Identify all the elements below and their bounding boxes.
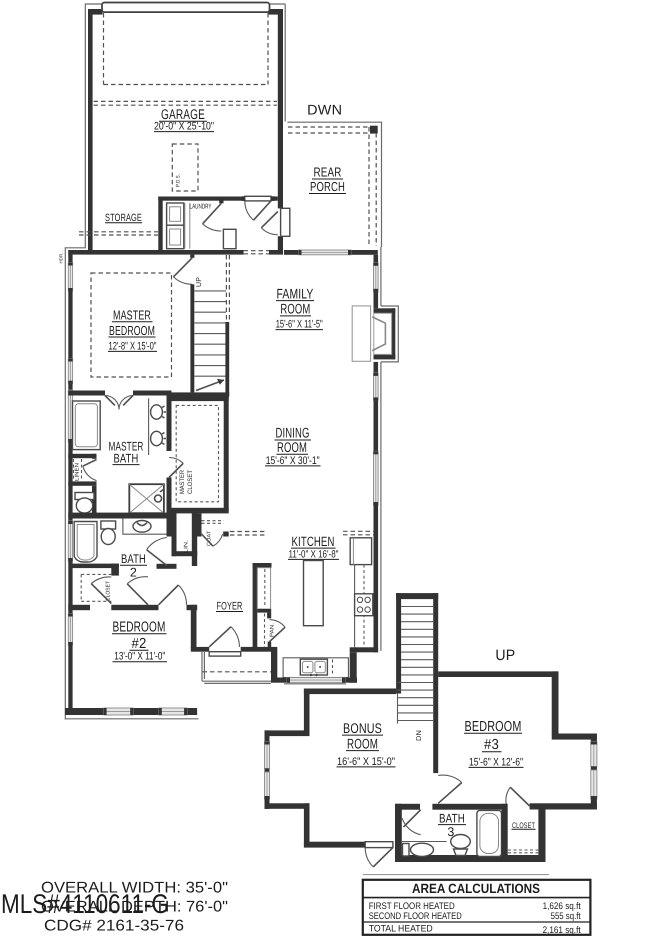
svg-text:MASTER: MASTER bbox=[179, 470, 186, 494]
svg-text:CLOSET: CLOSET bbox=[512, 821, 535, 830]
svg-text:PAN.: PAN. bbox=[270, 623, 276, 637]
svg-text:LAUNDRY: LAUNDRY bbox=[190, 203, 212, 210]
svg-text:LIN.: LIN. bbox=[184, 540, 190, 553]
svg-text:LINEN: LINEN bbox=[75, 463, 81, 481]
svg-text:TOTAL HEATED: TOTAL HEATED bbox=[369, 924, 433, 935]
svg-text:ROOM: ROOM bbox=[280, 301, 310, 317]
svg-text:CLOSET: CLOSET bbox=[187, 470, 194, 494]
svg-text:HDR.: HDR. bbox=[59, 253, 64, 264]
svg-text:PORCH: PORCH bbox=[310, 179, 345, 194]
svg-text:DN: DN bbox=[416, 730, 423, 741]
svg-text:REAR: REAR bbox=[314, 165, 342, 180]
svg-text:UP: UP bbox=[196, 277, 203, 287]
svg-text:15'-6" X 11'-5": 15'-6" X 11'-5" bbox=[276, 319, 323, 331]
svg-text:#2: #2 bbox=[132, 636, 147, 652]
svg-text:11'-0" X 16'-8": 11'-0" X 16'-8" bbox=[289, 548, 339, 560]
svg-text:BEDROOM: BEDROOM bbox=[465, 719, 522, 735]
svg-text:20'-0" X 25'-10": 20'-0" X 25'-10" bbox=[154, 121, 214, 133]
svg-text:STORAGE: STORAGE bbox=[105, 212, 142, 224]
svg-text:AREA CALCULATIONS: AREA CALCULATIONS bbox=[412, 881, 540, 896]
svg-text:OVERALL WIDTH: 35'-0": OVERALL WIDTH: 35'-0" bbox=[41, 879, 228, 896]
svg-text:OVERALL DEPTH: 76'-0": OVERALL DEPTH: 76'-0" bbox=[41, 898, 228, 915]
svg-text:P.D.S.: P.D.S. bbox=[176, 174, 182, 187]
svg-text:ROOM: ROOM bbox=[277, 439, 307, 455]
svg-text:ROOM: ROOM bbox=[347, 735, 378, 751]
svg-text:BATH: BATH bbox=[121, 552, 146, 566]
svg-text:FOYER: FOYER bbox=[217, 601, 243, 613]
svg-text:2,161 sq.ft: 2,161 sq.ft bbox=[543, 925, 581, 936]
svg-text:GARAGE: GARAGE bbox=[161, 106, 205, 122]
svg-text:15'-6" X 30'-1": 15'-6" X 30'-1" bbox=[266, 455, 320, 467]
svg-text:12'-8" X 15'-0": 12'-8" X 15'-0" bbox=[109, 340, 157, 352]
svg-text:BONUS: BONUS bbox=[343, 720, 382, 736]
svg-text:CDG# 2161-35-76: CDG# 2161-35-76 bbox=[44, 917, 184, 934]
svg-text:#3: #3 bbox=[484, 737, 499, 753]
svg-text:16'-6" X 15'-0": 16'-6" X 15'-0" bbox=[337, 756, 395, 768]
svg-text:15'-6" X 12'-6": 15'-6" X 12'-6" bbox=[469, 756, 523, 768]
svg-text:13'-0" X 11'-0": 13'-0" X 11'-0" bbox=[114, 651, 165, 663]
svg-text:2: 2 bbox=[130, 566, 137, 580]
svg-text:UP: UP bbox=[495, 647, 515, 664]
svg-text:MASTER: MASTER bbox=[113, 308, 151, 323]
svg-text:BATH: BATH bbox=[439, 811, 465, 825]
svg-text:DWN: DWN bbox=[307, 101, 342, 117]
svg-text:BEDROOM: BEDROOM bbox=[113, 619, 166, 635]
svg-text:555 sq.ft: 555 sq.ft bbox=[551, 911, 581, 922]
svg-text:FAMILY: FAMILY bbox=[277, 285, 314, 301]
svg-text:BEDROOM: BEDROOM bbox=[109, 323, 155, 338]
svg-text:KITCHEN: KITCHEN bbox=[292, 534, 335, 549]
svg-text:SECOND FLOOR HEATED: SECOND FLOOR HEATED bbox=[369, 911, 462, 922]
svg-text:BATH: BATH bbox=[114, 452, 139, 466]
